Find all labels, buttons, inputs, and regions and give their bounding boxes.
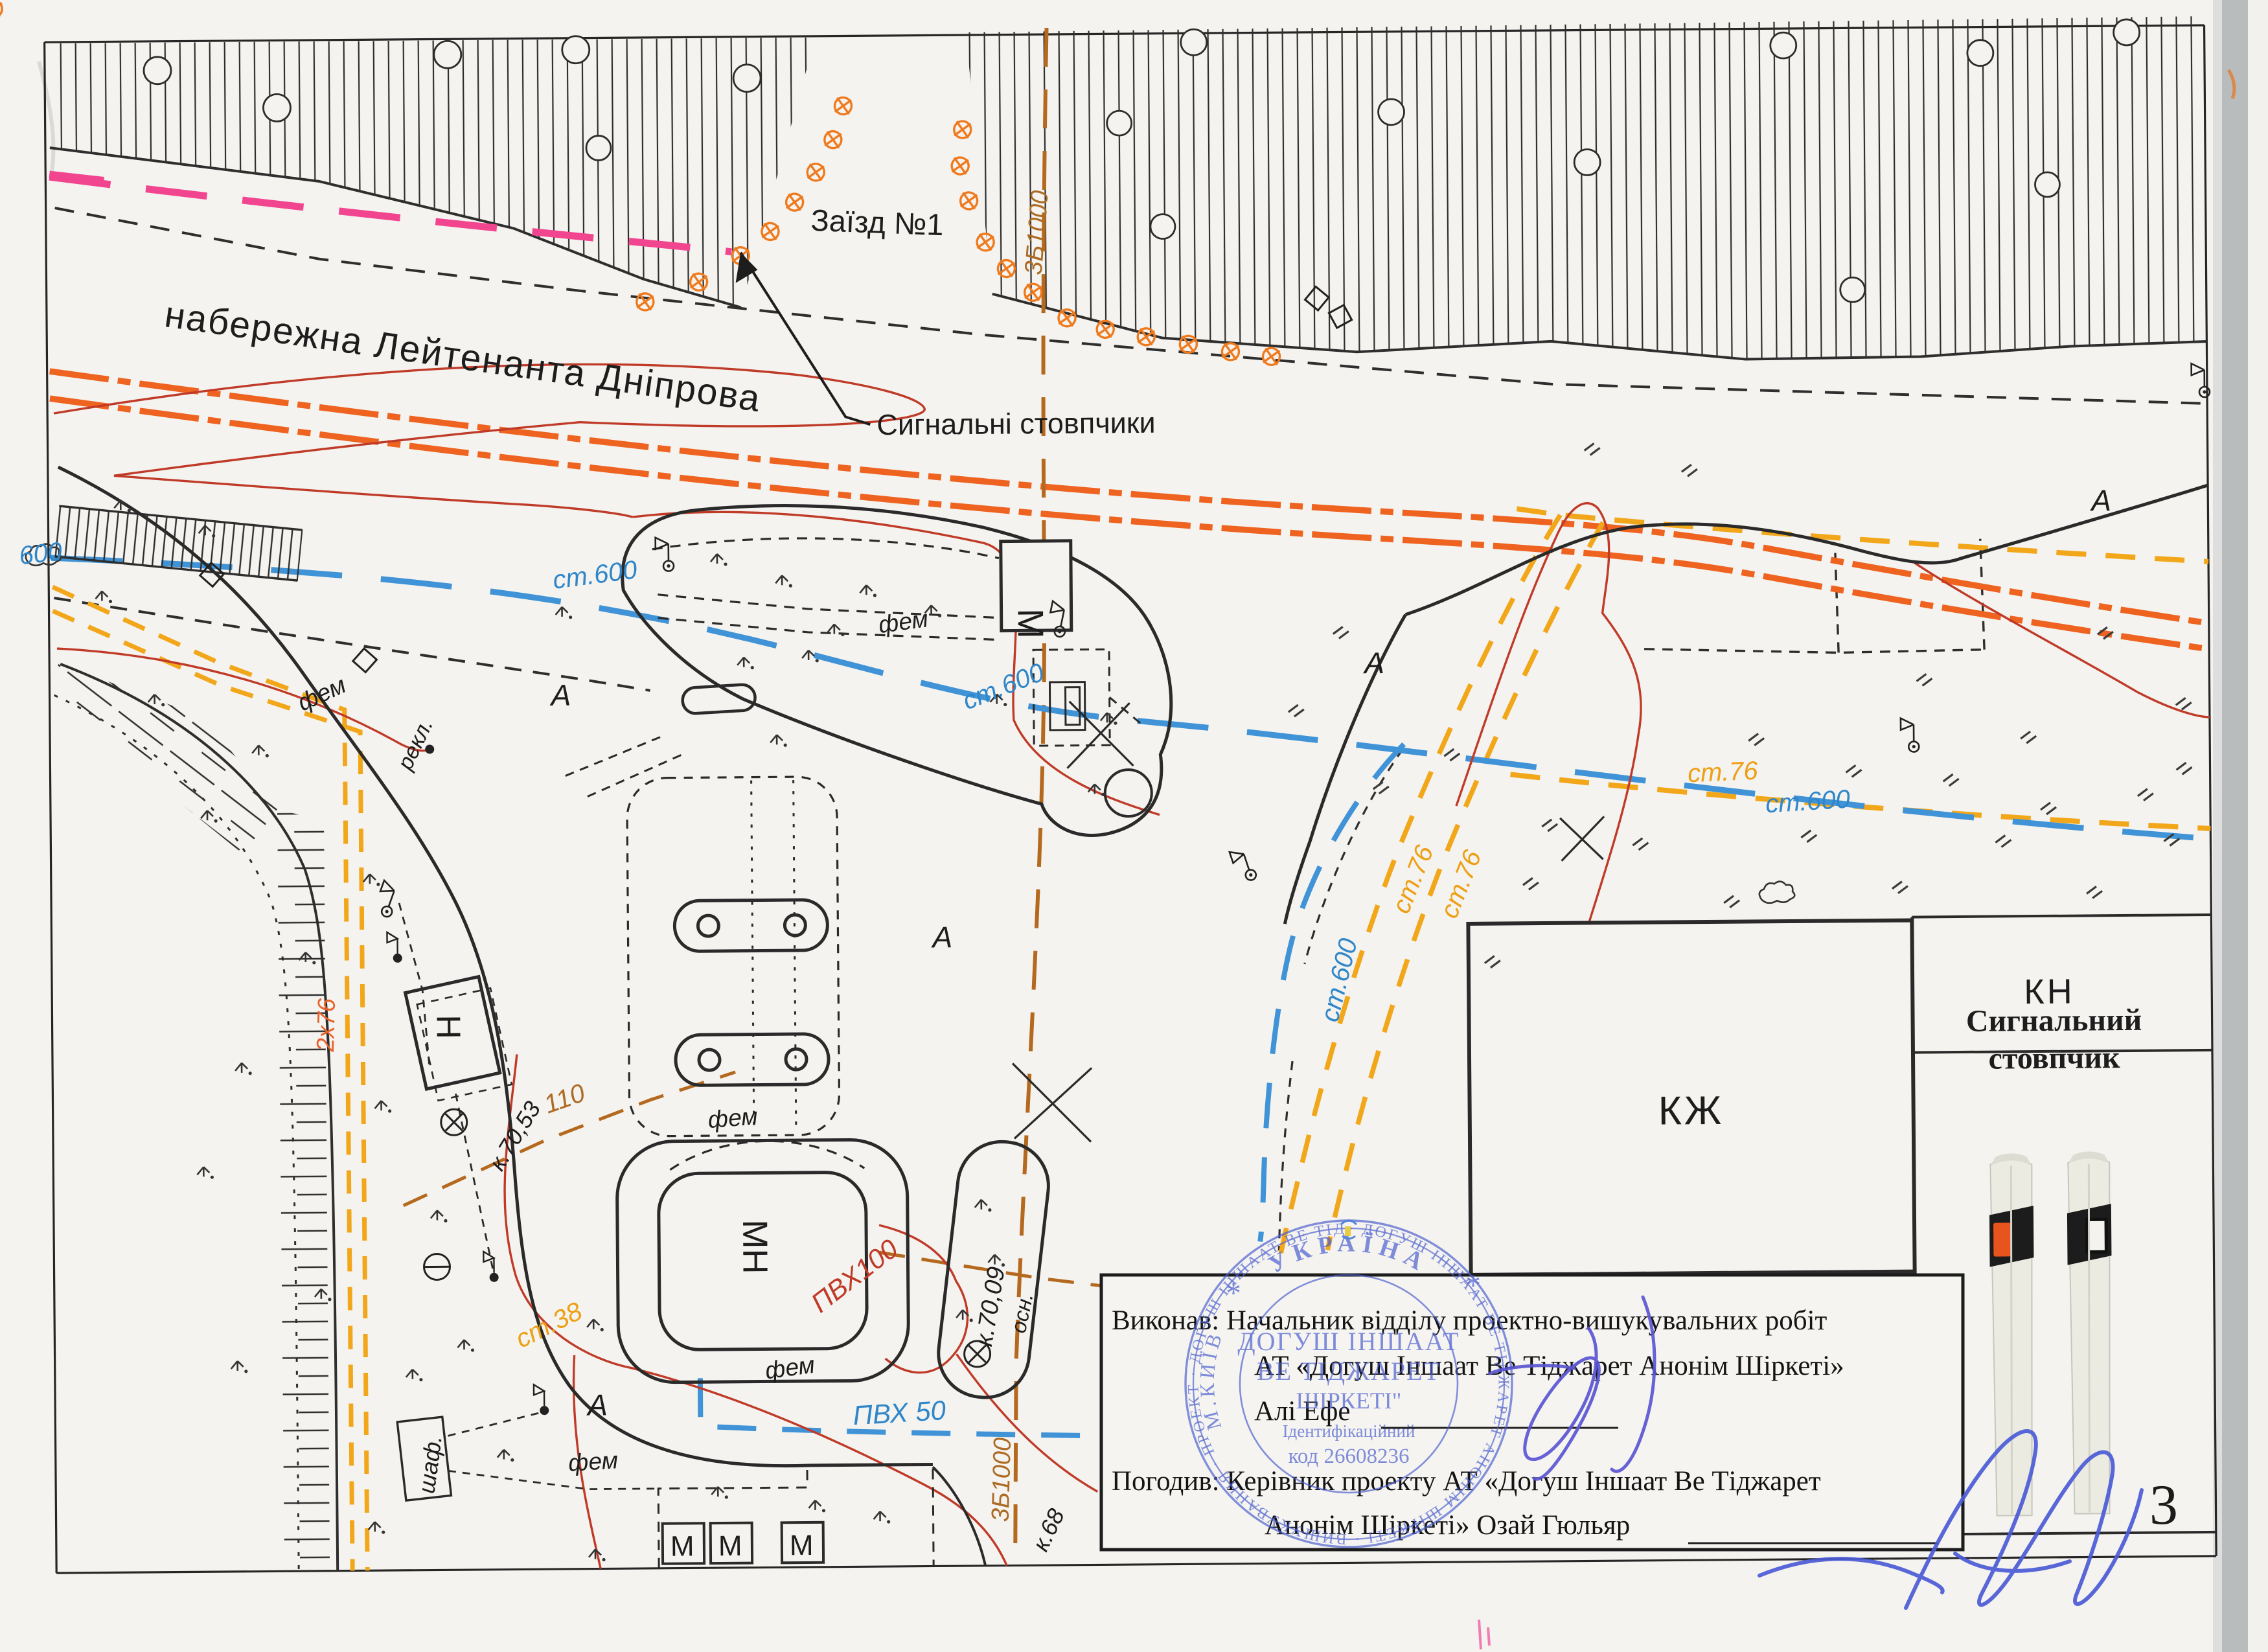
st600-label: ст.600 [551,555,639,595]
kiosk-m-label: М [718,1530,742,1562]
fem-label: фем [877,605,930,638]
stamp-id-label: Ідентифікаційний [1283,1421,1415,1441]
surface-a-label: А [930,920,952,954]
surface-a-label: А [586,1388,608,1421]
planters [626,683,839,1136]
page-number: 3 [2149,1474,2178,1537]
legend-title: стовпчик [1988,1040,2120,1076]
pvc100-label: ПВХ100 [805,1233,904,1318]
cable2x76-label: 2х76 [312,998,341,1053]
stamp-org: ВЕ ТІДЖАРЕТ [1257,1357,1441,1386]
shaf-label: шаф. [413,1434,447,1495]
signal-post-left-icon [1989,1153,2035,1516]
surface-a-label: А [1362,646,1384,680]
surface-a-label: А [2089,483,2111,517]
driveway-label: Заїзд №1 [810,203,945,242]
cable3b1000-label: 3Б1000 [987,1437,1017,1522]
signal-posts-callout-label: Сигнальні стовпчики [876,406,1156,441]
st76-label: ст.76 [1435,846,1487,923]
st600-label: 600 [17,537,63,570]
scanned-site-plan-page: набережна Лейтенанта Дніпрова Заїзд №1 С… [0,0,2268,1652]
pvc50-label: ПВХ 50 [852,1395,947,1431]
fem-label: фем [567,1447,619,1476]
building-kzh-label: КЖ [1658,1088,1724,1134]
fem-label: фем [707,1103,759,1133]
n-building [399,902,513,1276]
surface-a-label: А [549,678,571,712]
stamp-org: ШІРКЕТІ" [1296,1388,1401,1414]
approval-textbox: Виконав: Начальник відділу проектно-вишу… [1101,1275,1963,1550]
stamp-id-code: код 26608236 [1289,1445,1410,1468]
grass-tufts [95,492,1123,1565]
elevation-label: к.70,09 [970,1265,1011,1348]
kiosk-m-label: М [670,1530,694,1562]
st76-label: ст.76 [1387,841,1439,917]
hatched-area-left [49,34,818,313]
line110-label: 110 [540,1079,589,1119]
stamp-org: ДОГУШ ІНШААТ [1237,1327,1460,1356]
stamp-star: * [1465,1268,1481,1303]
orange-chain-lines [50,354,2209,666]
building-mn-label: МН [735,1219,775,1274]
building-m-label: М [1011,608,1051,639]
st76-label: ст.76 [1687,757,1759,788]
elevation-label: к.68 [1027,1504,1070,1555]
stamp-star: * [1226,1276,1241,1311]
st600-label: ст.600 [1316,935,1363,1024]
building-n-label: Н [429,1015,466,1039]
st600-label: ст.600 [1765,785,1851,819]
site-plan-svg: набережна Лейтенанта Дніпрова Заїзд №1 С… [0,0,2268,1652]
kiosk-m-label: М [790,1530,814,1561]
hatched-area-right [965,16,2206,365]
legend-title: Сигнальний [1966,1003,2142,1038]
fem-label: фем [764,1351,817,1384]
well-dash-icon [424,1254,450,1279]
